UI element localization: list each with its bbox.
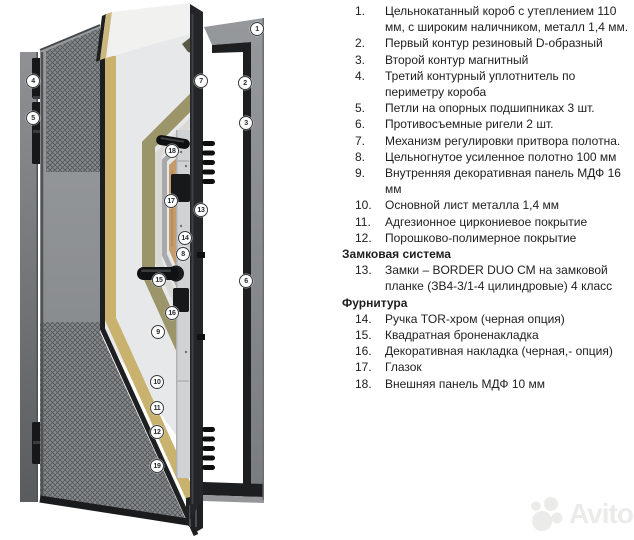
door-handle [137, 266, 184, 282]
spec-item-number: 1. [355, 3, 385, 35]
door-cutaway-illustration: 12345678910111213141516171819 [0, 0, 340, 540]
avito-watermark-text: Avito [569, 496, 633, 532]
spec-item-text: Первый контур резиновый D-образный [385, 35, 633, 51]
spec-item-text: Квадратная броненакладка [385, 327, 633, 343]
spec-item: 12.Порошково-полимерное покрытие [342, 230, 633, 246]
spec-item-number: 9. [355, 165, 385, 197]
spec-item: 2.Первый контур резиновый D-образный [342, 35, 633, 51]
spec-item: 3.Второй контур магнитный [342, 52, 633, 68]
spec-item: 14.Ручка TOR-хром (черная опция) [342, 311, 633, 327]
spec-item-text: Противосъемные ригели 2 шт. [385, 116, 633, 132]
spec-item: 17.Глазок [342, 359, 633, 375]
spec-item-text: Адгезионное циркониевое покрытие [385, 214, 633, 230]
spec-item-text: Цельногнутое усиленное полотно 100 мм [385, 149, 633, 165]
spec-item: 6.Противосъемные ригели 2 шт. [342, 116, 633, 132]
door-edge-profile [190, 4, 215, 520]
spec-item: 1.Цельнокатанный короб с утеплением 110 … [342, 3, 633, 35]
spec-item: 5.Петли на опорных подшипниках 3 шт. [342, 100, 633, 116]
spec-section-heading: Замковая система [342, 246, 633, 262]
spec-item-number: 10. [355, 197, 385, 213]
spec-item-number: 14. [355, 311, 385, 327]
spec-list: 1.Цельнокатанный короб с утеплением 110 … [342, 3, 633, 392]
spec-item: 15.Квадратная броненакладка [342, 327, 633, 343]
spec-item-number: 15. [355, 327, 385, 343]
spec-item-number: 11. [355, 214, 385, 230]
spec-item-text: Петли на опорных подшипниках 3 шт. [385, 100, 633, 116]
spec-item-text: Третий контурный уплотнитель по периметр… [385, 68, 633, 100]
spec-item-number: 16. [355, 343, 385, 359]
spec-item-number: 6. [355, 116, 385, 132]
spec-item-text: Замки – BORDER DUO СМ на замковой планке… [385, 262, 633, 294]
spec-item-text: Механизм регулировки притвора полотна. [385, 133, 633, 149]
spec-item: 10.Основной лист металла 1,4 мм [342, 197, 633, 213]
spec-item-number: 17. [355, 359, 385, 375]
door-frame-left-post [20, 52, 41, 502]
spec-item: 8.Цельногнутое усиленное полотно 100 мм [342, 149, 633, 165]
lock-body-lower [173, 288, 189, 312]
spec-item-number: 18. [355, 376, 385, 392]
spec-item: 4.Третий контурный уплотнитель по периме… [342, 68, 633, 100]
frame-seal-contour [212, 42, 251, 498]
avito-watermark: Avito [525, 496, 633, 532]
avito-logo-icon [525, 496, 567, 532]
spec-item-text: Ручка TOR-хром (черная опция) [385, 311, 633, 327]
door-diagram-svg [0, 0, 340, 540]
spec-item-text: Цельнокатанный короб с утеплением 110 мм… [385, 3, 633, 35]
spec-item-text: Порошково-полимерное покрытие [385, 230, 633, 246]
spec-item-text: Глазок [385, 359, 633, 375]
spec-item-text: Внешняя панель МДФ 10 мм [385, 376, 633, 392]
spec-item: 16.Декоративная накладка (черная,- опция… [342, 343, 633, 359]
spec-item-number: 4. [355, 68, 385, 100]
spec-item-text: Декоративная накладка (черная,- опция) [385, 343, 633, 359]
spec-item-number: 2. [355, 35, 385, 51]
spec-item-text: Внутренняя декоративная панель МДФ 16 мм [385, 165, 633, 197]
product-image: 12345678910111213141516171819 1.Цельнока… [0, 0, 634, 540]
spec-item-number: 5. [355, 100, 385, 116]
spec-item-number: 12. [355, 230, 385, 246]
spec-item-number: 7. [355, 133, 385, 149]
spec-item-number: 3. [355, 52, 385, 68]
anti-theft-pins-lower [202, 427, 215, 470]
spec-item-number: 8. [355, 149, 385, 165]
spec-item-number: 13. [355, 262, 385, 294]
spec-item-text: Основной лист металла 1,4 мм [385, 197, 633, 213]
spec-item: 7.Механизм регулировки притвора полотна. [342, 133, 633, 149]
spec-section-heading: Фурнитура [342, 295, 633, 311]
spec-item: 11.Адгезионное циркониевое покрытие [342, 214, 633, 230]
frame-threshold [203, 482, 264, 497]
anti-theft-pins-upper [202, 141, 215, 184]
spec-item: 13.Замки – BORDER DUO СМ на замковой пла… [342, 262, 633, 294]
spec-item-text: Второй контур магнитный [385, 52, 633, 68]
spec-item: 9.Внутренняя декоративная панель МДФ 16 … [342, 165, 633, 197]
deadbolt-latch [197, 252, 205, 258]
spec-item: 18.Внешняя панель МДФ 10 мм [342, 376, 633, 392]
external-panel-pattern-top [46, 28, 100, 172]
lock-body-upper [171, 174, 190, 202]
